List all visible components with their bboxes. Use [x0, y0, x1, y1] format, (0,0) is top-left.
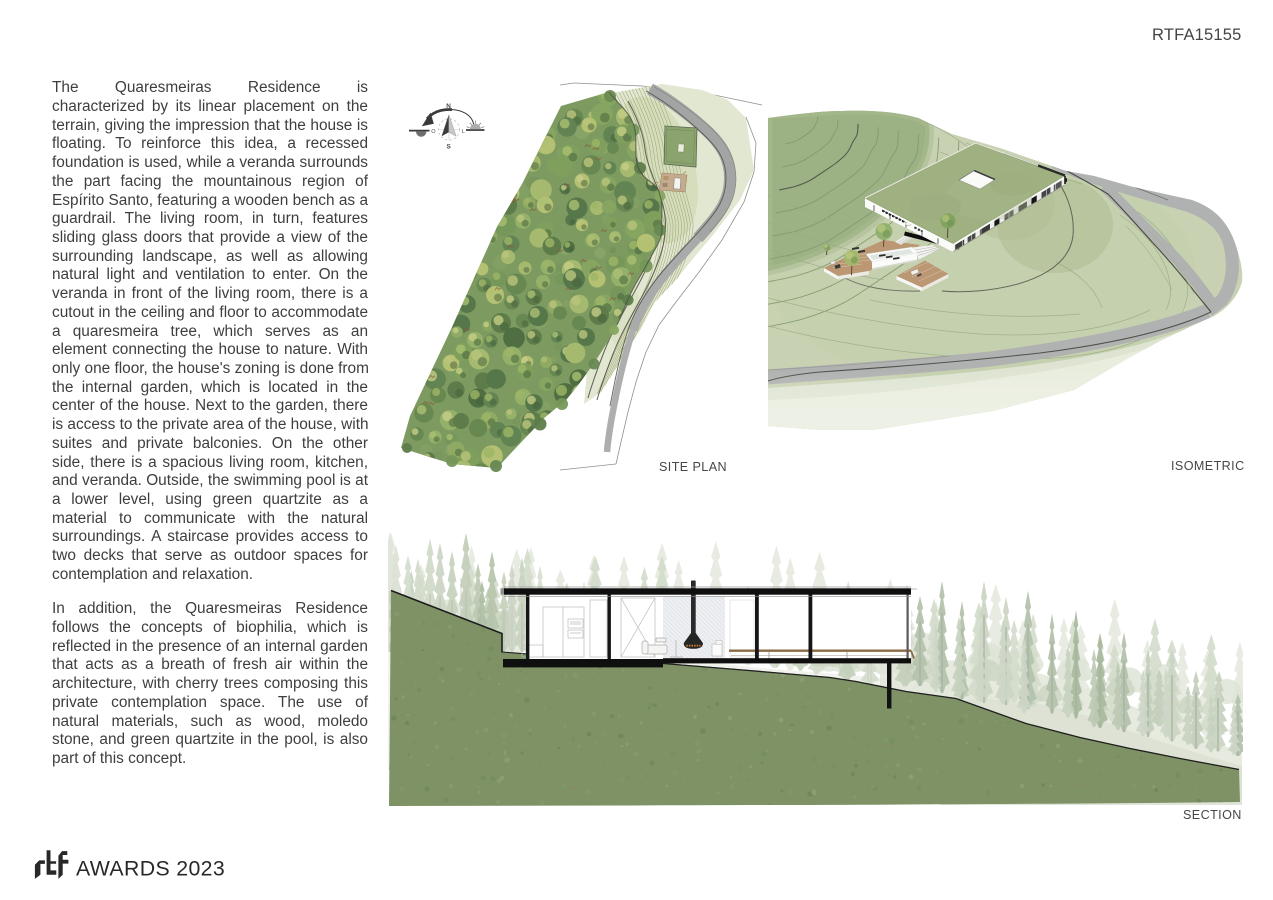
svg-text:L: L — [462, 129, 465, 135]
svg-text:N: N — [446, 103, 451, 110]
svg-text:O: O — [431, 129, 436, 135]
svg-text:S: S — [447, 143, 452, 150]
svg-text:AWARDS 2023: AWARDS 2023 — [76, 857, 225, 881]
